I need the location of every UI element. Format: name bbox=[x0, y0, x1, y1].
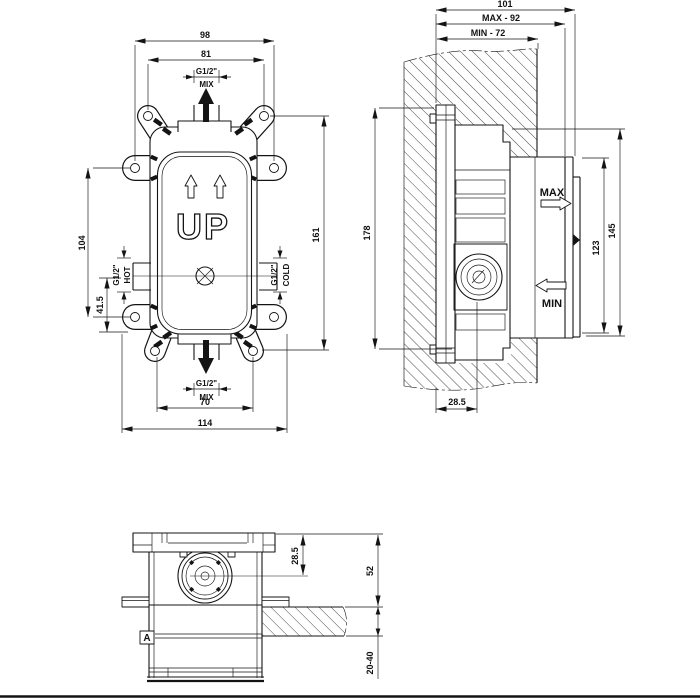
plate-lug bbox=[430, 345, 436, 354]
bottom-lower-body bbox=[147, 605, 264, 681]
bottom-tab-right bbox=[262, 597, 289, 607]
flange-notch bbox=[228, 552, 235, 557]
screw-hole bbox=[131, 313, 140, 322]
bottom-wall-section bbox=[262, 607, 347, 636]
mini-dim-arrow bbox=[219, 75, 227, 80]
wall-cutout bbox=[455, 125, 503, 143]
bottom-tab-left bbox=[122, 597, 149, 607]
top-port-name-label: MIX bbox=[199, 80, 214, 89]
dim-min-72-label: MIN - 72 bbox=[471, 28, 506, 38]
mini-dim-arrow bbox=[186, 75, 194, 80]
dim-178-label: 178 bbox=[362, 225, 372, 240]
left-port-name-label: HOT bbox=[123, 266, 132, 283]
front-view: UP 98 81 G1/2" MIX 104 bbox=[77, 30, 329, 433]
dim-arrow bbox=[376, 607, 381, 615]
dim-52-label: 52 bbox=[365, 566, 375, 576]
dim-28-5-label: 28.5 bbox=[448, 397, 466, 407]
mini-dim-arrow bbox=[219, 387, 227, 392]
screw-hole bbox=[270, 164, 279, 173]
dim-104-label: 104 bbox=[77, 235, 87, 250]
screw-hole bbox=[249, 347, 258, 356]
dim-28-5-label: 28.5 bbox=[290, 547, 300, 565]
bottom-upper-body bbox=[149, 552, 262, 605]
dim-81-label: 81 bbox=[201, 49, 211, 59]
dim-114-label: 114 bbox=[198, 418, 213, 428]
plate-lug bbox=[430, 114, 436, 123]
dim-145-label: 145 bbox=[607, 223, 617, 238]
dim-123-label: 123 bbox=[591, 240, 601, 255]
right-port-name-label: COLD bbox=[282, 263, 291, 286]
bottom-port-circles bbox=[178, 549, 308, 603]
screw-hole bbox=[144, 112, 153, 121]
dim-max-92-label: MAX - 92 bbox=[482, 13, 520, 23]
dim-20-40-label: 20-40 bbox=[365, 651, 375, 674]
dim-70-label: 70 bbox=[200, 397, 210, 407]
up-label: UP bbox=[176, 206, 230, 247]
wall-hatch-band bbox=[262, 607, 347, 636]
bottom-port-size-label: G1/2" bbox=[196, 379, 217, 388]
dim-arrow bbox=[376, 629, 381, 637]
mini-dim-arrow bbox=[278, 251, 283, 259]
screw-hole bbox=[270, 313, 279, 322]
bottom-view: A 28.5 bbox=[122, 533, 383, 681]
side-view: MAX MIN 101 MAX - 92 MIN - 72 178 123 bbox=[362, 0, 625, 413]
flange-notch bbox=[180, 552, 187, 557]
top-port-size-label: G1/2" bbox=[196, 67, 217, 76]
rim-notch bbox=[573, 234, 580, 246]
dim-161-label: 161 bbox=[311, 227, 321, 242]
installation-drawing: UP 98 81 G1/2" MIX 104 bbox=[0, 0, 700, 700]
dim-101-label: 101 bbox=[497, 0, 512, 9]
mini-dim-arrow bbox=[122, 292, 127, 300]
technical-drawing-page: UP 98 81 G1/2" MIX 104 bbox=[0, 0, 700, 700]
dim-98-label: 98 bbox=[200, 30, 210, 40]
min-label: MIN bbox=[542, 298, 562, 310]
min-left-arrow-icon bbox=[536, 279, 566, 292]
wall-cutout bbox=[510, 157, 538, 338]
section-marker-label: A bbox=[143, 633, 150, 644]
flange-outline bbox=[133, 533, 275, 552]
flow-up-arrow-icon bbox=[198, 88, 214, 122]
mini-dim-arrow bbox=[186, 387, 194, 392]
bottom-view-dimensions: 28.5 52 20-40 bbox=[276, 534, 383, 679]
screw-hole bbox=[151, 347, 160, 356]
screw-hole bbox=[260, 112, 269, 121]
top-port-boss bbox=[178, 121, 231, 132]
flow-down-arrow-icon bbox=[198, 340, 214, 374]
mini-dim-arrow bbox=[278, 292, 283, 300]
dim-41-5-label: 41.5 bbox=[95, 296, 105, 314]
right-port-size-label: G1/2" bbox=[270, 264, 279, 285]
screw-hole bbox=[131, 164, 140, 173]
left-port-size-label: G1/2" bbox=[112, 264, 121, 285]
mini-dim-arrow bbox=[122, 251, 127, 259]
